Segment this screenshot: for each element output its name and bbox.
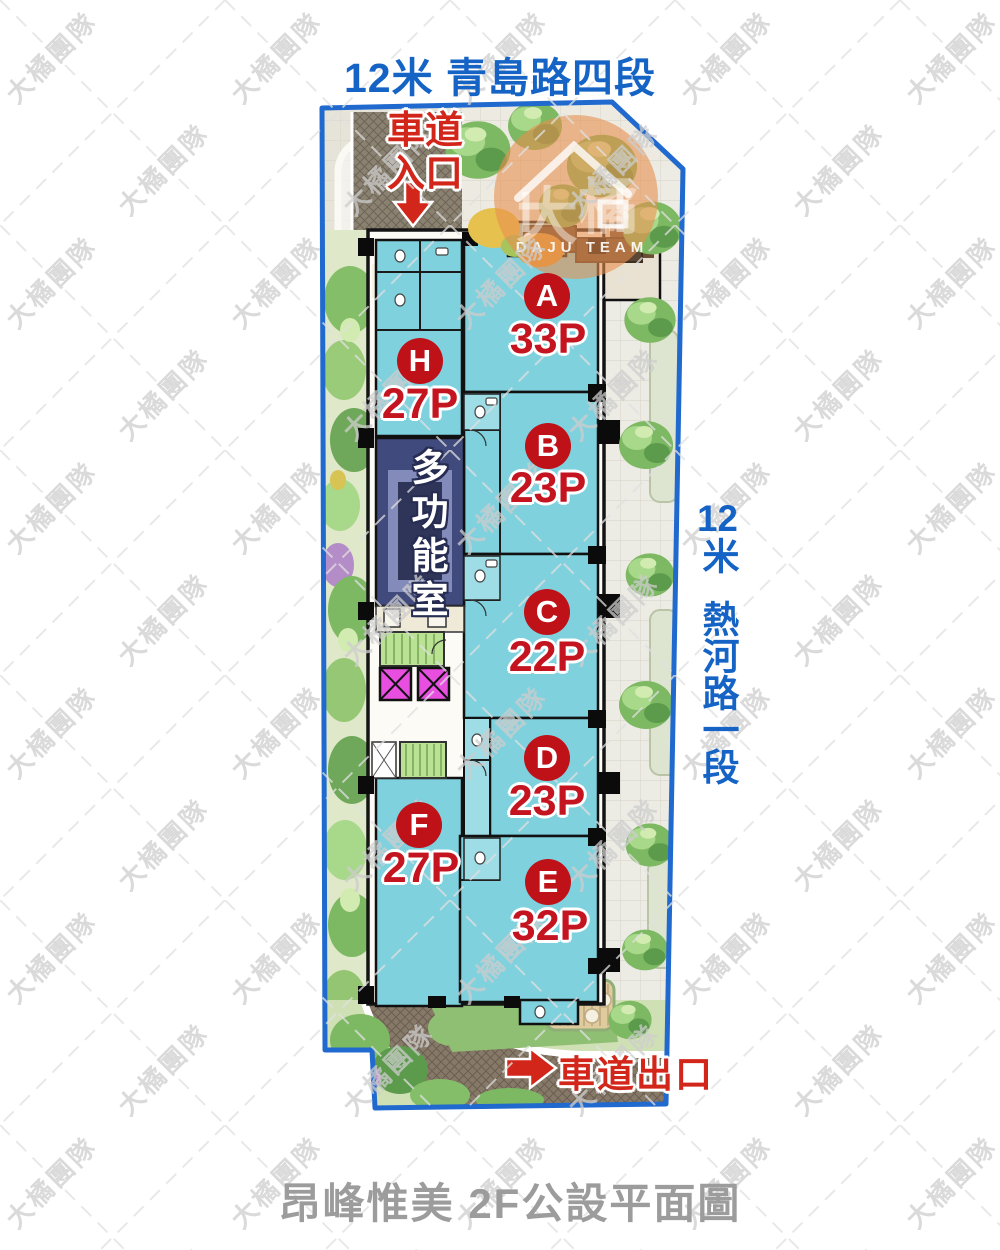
unit-h-size: 27P [350, 381, 490, 427]
unit-f-size: 27P [351, 845, 491, 891]
unit-b-size: 23P [478, 465, 618, 511]
unit-e-badge: E [525, 859, 571, 905]
unit-f-badge: F [396, 802, 442, 848]
street-right-name: 熱河路一段 [697, 600, 738, 785]
street-label-right: 12米熱河路一段 [699, 500, 736, 800]
unit-h-badge: H [397, 338, 443, 384]
unit-c-size: 22P [477, 634, 617, 680]
driveway-exit-label: 車道出口 [558, 1044, 714, 1098]
unit-c-badge: C [524, 589, 570, 635]
floor-plan-title: 昂峰惟美 2F公設平面圖 [240, 1170, 780, 1231]
driveway-entrance-label: 車道入口 [378, 110, 472, 195]
floor-plan-page: 大橘團隊 大橘團隊 [0, 0, 1000, 1250]
street-right-number: 12 [697, 500, 738, 537]
unit-d-size: 23P [477, 778, 617, 824]
unit-a-size: 33P [478, 316, 618, 362]
street-label-top: 12米 青島路四段 [280, 44, 720, 104]
unit-b-badge: B [525, 423, 571, 469]
multi-function-room-label: 多功能室 [399, 448, 453, 624]
site-plan-drawing: 大橘團隊 大橘團隊 [0, 0, 1000, 1250]
unit-e-size: 32P [480, 903, 620, 949]
unit-d-badge: D [524, 735, 570, 781]
watermark-layer [0, 0, 1000, 1250]
street-right-unit: 米 [697, 537, 738, 574]
unit-a-badge: A [524, 273, 570, 319]
